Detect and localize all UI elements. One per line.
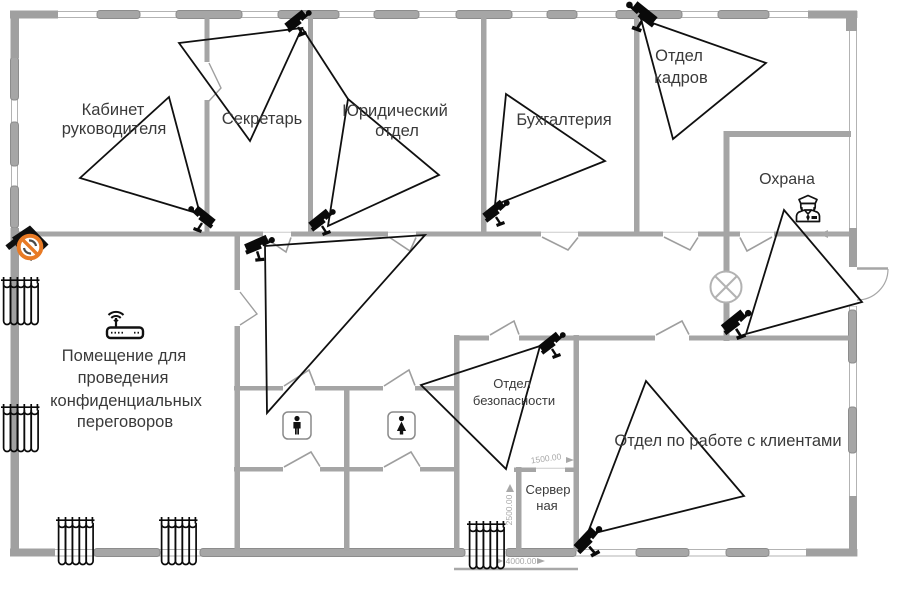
- svg-text:безопасности: безопасности: [473, 393, 555, 408]
- svg-text:конфиденциальных: конфиденциальных: [50, 392, 202, 410]
- svg-text:Бухгалтерия: Бухгалтерия: [516, 111, 611, 129]
- svg-text:проведения: проведения: [78, 369, 169, 387]
- svg-text:Юридический: Юридический: [342, 102, 448, 120]
- svg-text:кадров: кадров: [654, 69, 708, 87]
- svg-text:Охрана: Охрана: [759, 171, 815, 188]
- svg-text:Отдел по работе с клиентами: Отдел по работе с клиентами: [614, 432, 841, 450]
- svg-text:Кабинет: Кабинет: [82, 101, 145, 119]
- svg-text:Сервер: Сервер: [525, 482, 570, 497]
- svg-text:Отдел: Отдел: [493, 376, 531, 391]
- svg-text:отдел: отдел: [375, 122, 419, 140]
- svg-text:ная: ная: [536, 498, 557, 513]
- svg-text:Помещение для: Помещение для: [62, 347, 186, 365]
- svg-text:4000.00: 4000.00: [506, 556, 537, 566]
- svg-text:руководителя: руководителя: [62, 120, 167, 138]
- svg-text:Отдел: Отдел: [655, 47, 703, 65]
- svg-text:2500.00: 2500.00: [504, 494, 514, 525]
- svg-text:Секретарь: Секретарь: [222, 110, 302, 128]
- svg-text:переговоров: переговоров: [77, 413, 173, 431]
